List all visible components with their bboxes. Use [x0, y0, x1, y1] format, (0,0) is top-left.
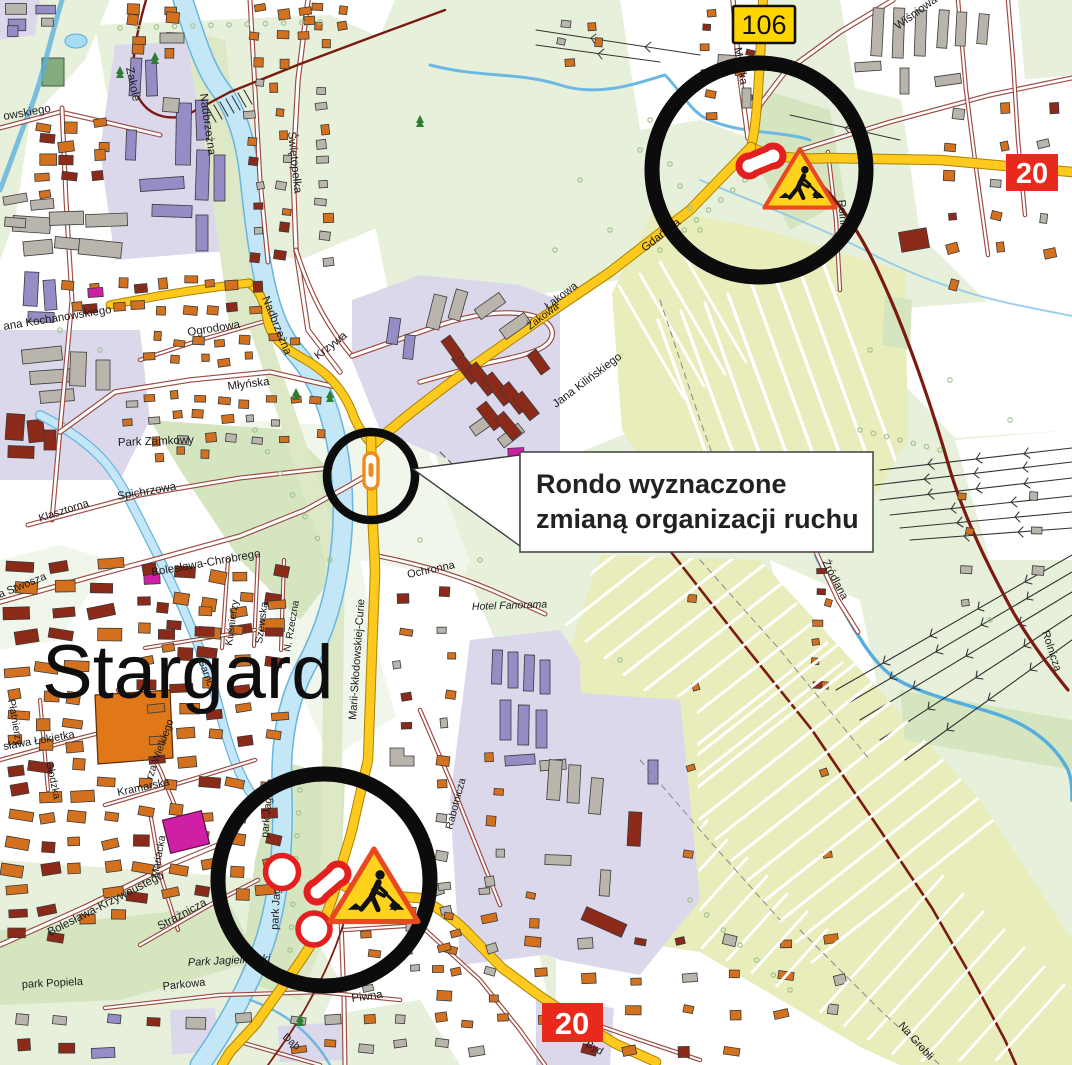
- svg-text:zmianą organizacji ruchu: zmianą organizacji ruchu: [536, 504, 859, 534]
- svg-text:Stargard: Stargard: [42, 630, 334, 715]
- svg-text:106: 106: [741, 10, 786, 40]
- svg-text:20: 20: [555, 1006, 589, 1041]
- svg-text:Rondo wyznaczone: Rondo wyznaczone: [536, 469, 787, 499]
- svg-text:20: 20: [1016, 158, 1048, 190]
